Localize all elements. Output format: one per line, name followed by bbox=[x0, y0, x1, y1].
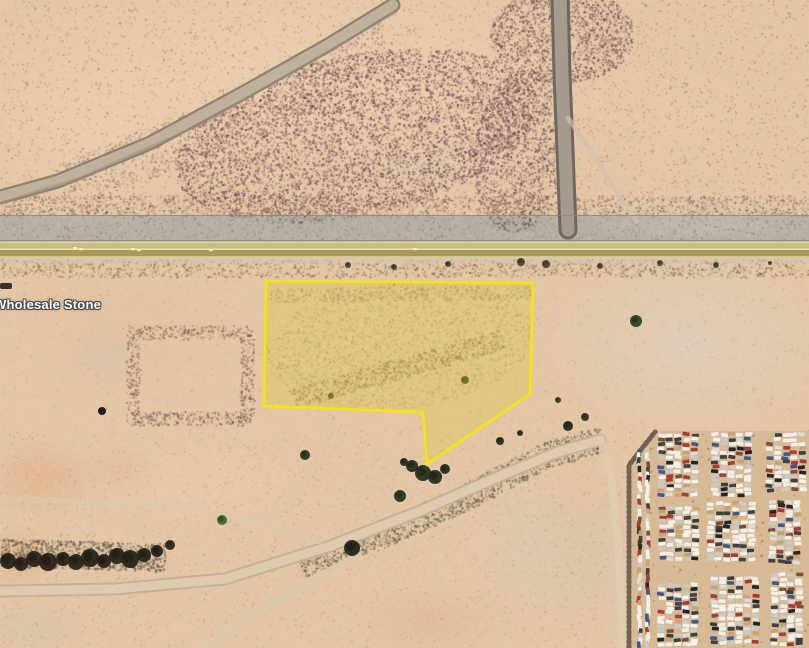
junkyard-dirt-dot bbox=[700, 624, 702, 626]
junk-car bbox=[719, 580, 726, 584]
junk-car bbox=[716, 511, 723, 515]
junk-car bbox=[691, 452, 698, 456]
junk-car bbox=[690, 475, 697, 479]
junk-car bbox=[769, 500, 776, 504]
junk-car bbox=[785, 560, 792, 564]
junk-car bbox=[728, 627, 735, 631]
junkyard-dirt-dot bbox=[694, 573, 697, 576]
junk-car bbox=[785, 523, 792, 527]
junk-car bbox=[715, 516, 722, 520]
junk-car bbox=[739, 512, 746, 516]
highway-pavement bbox=[0, 258, 809, 264]
junk-car bbox=[674, 624, 681, 628]
junk-car bbox=[675, 602, 682, 606]
junk-car bbox=[787, 637, 794, 641]
junk-car bbox=[676, 543, 683, 547]
junkyard-dirt-dot bbox=[701, 456, 703, 458]
junk-car bbox=[691, 448, 698, 452]
junk-car bbox=[691, 611, 698, 615]
junk-car bbox=[727, 607, 734, 611]
junk-car bbox=[719, 608, 726, 612]
junk-car bbox=[736, 581, 743, 585]
junk-car bbox=[718, 616, 725, 620]
tree-shadow bbox=[83, 551, 93, 561]
junk-car bbox=[691, 465, 698, 469]
junkyard-dirt-dot bbox=[673, 566, 675, 568]
junkyard-dirt-dot bbox=[632, 544, 634, 546]
junk-car bbox=[691, 436, 698, 440]
highway-pavement bbox=[0, 242, 809, 243]
junk-car bbox=[659, 519, 666, 523]
junk-car bbox=[719, 585, 726, 589]
junk-car bbox=[658, 542, 665, 546]
junk-car bbox=[775, 475, 782, 479]
junk-car bbox=[718, 613, 725, 617]
junk-car bbox=[769, 550, 776, 554]
junk-car bbox=[684, 548, 691, 552]
junk-car bbox=[799, 451, 806, 455]
junkyard-dirt-dot bbox=[738, 562, 740, 564]
junk-car bbox=[731, 557, 738, 561]
junk-car bbox=[667, 529, 674, 533]
junk-car bbox=[736, 608, 743, 612]
junk-car bbox=[736, 489, 743, 493]
junkyard-dirt-dot bbox=[708, 458, 711, 461]
junk-car bbox=[659, 525, 666, 529]
junkyard-dirt-dot bbox=[727, 534, 728, 535]
junk-car bbox=[776, 554, 783, 558]
junk-car bbox=[716, 501, 723, 505]
junkyard-dirt-dot bbox=[708, 605, 710, 607]
junk-car bbox=[675, 633, 682, 637]
tree-shadow bbox=[70, 556, 79, 565]
junk-car bbox=[728, 632, 735, 636]
tree-shadow bbox=[2, 555, 11, 564]
junk-car bbox=[657, 488, 664, 492]
vehicle bbox=[137, 249, 141, 251]
tree-shadow bbox=[408, 462, 415, 469]
junk-car bbox=[658, 509, 665, 513]
tree-shadow bbox=[564, 422, 570, 428]
junk-car bbox=[666, 443, 673, 447]
junk-car bbox=[744, 447, 751, 451]
junkyard-dirt-dot bbox=[642, 473, 645, 476]
junk-car bbox=[682, 628, 689, 632]
tree-shadow bbox=[396, 492, 403, 499]
junk-car bbox=[712, 627, 719, 631]
junk-car bbox=[728, 432, 735, 436]
junk-car bbox=[719, 577, 726, 581]
junk-car bbox=[675, 598, 682, 602]
junk-car bbox=[733, 544, 740, 548]
junkyard-dirt-dot bbox=[653, 633, 655, 635]
junk-car bbox=[722, 529, 729, 533]
junk-car bbox=[675, 557, 682, 561]
junkyard-dirt-dot bbox=[777, 490, 778, 491]
junk-car bbox=[791, 487, 798, 491]
tree-shadow bbox=[417, 467, 426, 476]
junkyard-dirt-dot bbox=[678, 571, 681, 574]
junk-car bbox=[727, 589, 734, 593]
tree-shadow bbox=[123, 552, 133, 562]
junk-car bbox=[690, 455, 697, 459]
junk-car bbox=[710, 636, 717, 640]
junk-car bbox=[736, 438, 743, 442]
junk-car bbox=[771, 605, 778, 609]
junk-car bbox=[710, 577, 717, 581]
junk-car bbox=[691, 479, 698, 483]
junk-car bbox=[771, 577, 778, 581]
junk-car bbox=[729, 447, 736, 451]
tree-shadow bbox=[518, 259, 522, 263]
misc-objects bbox=[0, 283, 12, 289]
junk-car bbox=[744, 437, 751, 441]
junk-car bbox=[772, 623, 779, 627]
junk-car bbox=[791, 478, 798, 482]
tree-shadow bbox=[346, 542, 355, 551]
dirt-road-path bbox=[0, 440, 600, 591]
junkyard-dirt-dot bbox=[715, 565, 717, 567]
dirt-road-path bbox=[203, 556, 358, 648]
junk-car bbox=[788, 600, 795, 604]
junk-car bbox=[666, 461, 673, 465]
junk-car bbox=[736, 635, 743, 639]
junkyard-dirt-dot bbox=[643, 457, 644, 458]
junk-car bbox=[727, 576, 734, 580]
junk-car bbox=[645, 641, 649, 648]
junk-car bbox=[657, 638, 664, 642]
junk-car bbox=[668, 533, 675, 537]
junk-car bbox=[776, 550, 783, 554]
junk-car bbox=[715, 542, 722, 546]
junkyard-dirt-dot bbox=[734, 646, 736, 648]
junk-car bbox=[739, 538, 746, 542]
junkyard-dirt-dot bbox=[673, 502, 675, 504]
junk-car bbox=[666, 514, 673, 518]
tree-shadow bbox=[497, 438, 501, 442]
tree-shadow bbox=[446, 262, 449, 265]
junk-car bbox=[767, 474, 774, 478]
tree-shadow bbox=[218, 516, 224, 522]
junk-car bbox=[787, 615, 794, 619]
junk-car bbox=[752, 585, 759, 589]
junkyard-dirt-dot bbox=[805, 630, 806, 631]
junk-car bbox=[787, 642, 794, 646]
junk-car bbox=[739, 534, 746, 538]
junk-car bbox=[715, 539, 722, 543]
highway-pavement bbox=[0, 243, 809, 249]
junkyard-dirt-dot bbox=[653, 600, 655, 602]
vehicle bbox=[131, 248, 135, 250]
junk-car bbox=[741, 520, 748, 524]
tree-shadow bbox=[441, 465, 447, 471]
junk-car bbox=[794, 513, 801, 517]
junk-car bbox=[666, 583, 673, 587]
junk-car bbox=[732, 507, 739, 511]
tree-shadow bbox=[598, 264, 601, 267]
junk-car bbox=[752, 594, 759, 598]
junk-car bbox=[752, 631, 759, 635]
junk-car bbox=[798, 432, 805, 436]
junk-car bbox=[711, 474, 718, 478]
junk-car bbox=[783, 439, 790, 443]
junk-car bbox=[778, 523, 785, 527]
junkyard-dirt-dot bbox=[651, 471, 653, 473]
junk-car bbox=[721, 461, 728, 465]
junk-car bbox=[665, 638, 672, 642]
junk-car bbox=[786, 505, 793, 509]
junk-car bbox=[675, 615, 682, 619]
tree-shadow bbox=[556, 398, 559, 401]
junk-car bbox=[732, 521, 739, 525]
junkyard-dirt-dot bbox=[652, 447, 654, 449]
junk-car bbox=[666, 634, 673, 638]
junk-car bbox=[691, 556, 698, 560]
junk-car bbox=[675, 516, 682, 520]
junk-car bbox=[728, 622, 735, 626]
tree-shadow bbox=[41, 555, 51, 565]
junk-car bbox=[783, 446, 790, 450]
junk-car bbox=[711, 461, 718, 465]
junk-car bbox=[692, 519, 699, 523]
junk-car bbox=[706, 502, 713, 506]
junk-car bbox=[667, 464, 674, 468]
junk-car bbox=[735, 590, 742, 594]
junk-car bbox=[683, 480, 690, 484]
junk-car bbox=[682, 450, 689, 454]
dirt-road-path bbox=[568, 118, 637, 221]
junkyard-dirt-dot bbox=[793, 494, 795, 496]
junk-car bbox=[666, 596, 673, 600]
junk-car bbox=[770, 537, 777, 541]
tree-shadow bbox=[658, 261, 661, 264]
junkyard-dirt-dot bbox=[698, 639, 701, 642]
junk-car bbox=[667, 506, 674, 510]
junk-car bbox=[690, 628, 697, 632]
junk-car bbox=[772, 581, 779, 585]
junk-car bbox=[721, 483, 728, 487]
junk-car bbox=[718, 599, 725, 603]
junk-car bbox=[793, 522, 800, 526]
junk-car bbox=[668, 539, 675, 543]
junkyard-dirt-dot bbox=[669, 580, 671, 582]
junk-car bbox=[788, 604, 795, 608]
junk-car bbox=[723, 553, 730, 557]
junk-car bbox=[732, 525, 739, 529]
junk-car bbox=[675, 606, 682, 610]
junkyard-dirt-dot bbox=[679, 568, 682, 571]
dirt-road-path bbox=[560, 0, 568, 230]
junk-car bbox=[779, 632, 786, 636]
junk-car bbox=[691, 461, 698, 465]
junk-car bbox=[744, 456, 751, 460]
junk-car bbox=[785, 551, 792, 555]
junk-car bbox=[665, 493, 672, 497]
junk-car bbox=[796, 623, 803, 627]
junk-car bbox=[767, 456, 774, 460]
junk-car bbox=[749, 552, 756, 556]
junk-car bbox=[692, 538, 699, 542]
parcel-polygon[interactable] bbox=[264, 281, 533, 464]
junk-car bbox=[796, 641, 803, 645]
junk-car bbox=[692, 551, 699, 555]
junk-car bbox=[727, 581, 734, 585]
junk-car bbox=[774, 456, 781, 460]
junk-car bbox=[781, 487, 788, 491]
junk-car bbox=[690, 642, 697, 646]
junk-car bbox=[658, 587, 665, 591]
junk-car bbox=[800, 488, 807, 492]
junk-car bbox=[731, 515, 738, 519]
junk-car bbox=[711, 640, 718, 644]
junk-car bbox=[739, 558, 746, 562]
tree-shadow bbox=[632, 317, 639, 324]
junk-car bbox=[747, 549, 754, 553]
junk-car bbox=[684, 543, 691, 547]
junk-car bbox=[674, 488, 681, 492]
junk-car bbox=[788, 633, 795, 637]
junk-car bbox=[691, 488, 698, 492]
junk-car bbox=[683, 483, 690, 487]
junk-car bbox=[783, 459, 790, 463]
junk-car bbox=[767, 465, 774, 469]
junk-car bbox=[682, 623, 689, 627]
junkyard-dirt-dot bbox=[705, 440, 707, 442]
junk-car bbox=[674, 446, 681, 450]
tree-shadow bbox=[16, 559, 24, 567]
junk-car bbox=[659, 456, 666, 460]
junk-car bbox=[666, 543, 673, 547]
junk-car bbox=[674, 583, 681, 587]
junk-car bbox=[711, 488, 718, 492]
tree-shadow bbox=[518, 431, 521, 434]
junk-car bbox=[776, 541, 783, 545]
junk-car bbox=[711, 585, 718, 589]
junk-car bbox=[794, 614, 801, 618]
junk-car bbox=[794, 531, 801, 535]
junk-car bbox=[799, 446, 806, 450]
tree-shadow bbox=[714, 263, 717, 266]
junk-car bbox=[783, 473, 790, 477]
junk-car bbox=[690, 597, 697, 601]
junk-car bbox=[692, 529, 699, 533]
junkyard bbox=[628, 431, 809, 648]
junk-car bbox=[740, 551, 747, 555]
junk-car bbox=[657, 610, 664, 614]
vehicle bbox=[73, 247, 77, 249]
junk-car bbox=[744, 478, 751, 482]
junk-car bbox=[690, 587, 697, 591]
junk-car bbox=[752, 581, 759, 585]
dirt-road-edge bbox=[0, 440, 600, 591]
junk-car bbox=[728, 641, 735, 645]
dark-object bbox=[0, 283, 12, 289]
highway-pavement bbox=[0, 250, 809, 256]
junkyard-dirt-dot bbox=[654, 476, 656, 478]
junk-car bbox=[675, 620, 682, 624]
junk-car bbox=[769, 505, 776, 509]
junk-car bbox=[790, 438, 797, 442]
junk-car bbox=[675, 493, 682, 497]
junk-car bbox=[723, 539, 730, 543]
junk-car bbox=[753, 604, 760, 608]
junk-car bbox=[728, 487, 735, 491]
tree-shadow bbox=[111, 550, 120, 559]
junk-car bbox=[796, 591, 803, 595]
junk-car bbox=[675, 510, 682, 514]
junk-car bbox=[736, 586, 743, 590]
junk-car bbox=[751, 576, 758, 580]
junk-car bbox=[736, 631, 743, 635]
junk-car bbox=[796, 573, 803, 577]
junk-car bbox=[735, 603, 742, 607]
junk-car bbox=[735, 595, 742, 599]
junk-car bbox=[684, 553, 691, 557]
junk-car bbox=[745, 492, 752, 496]
tree-shadow bbox=[28, 553, 37, 562]
junkyard-dirt-dot bbox=[699, 592, 701, 594]
junk-car bbox=[796, 627, 803, 631]
tree-shadow bbox=[301, 451, 307, 457]
junk-car bbox=[780, 642, 787, 646]
junkyard-dirt-dot bbox=[650, 448, 653, 451]
junk-car bbox=[715, 534, 722, 538]
junk-car bbox=[744, 487, 751, 491]
junk-car bbox=[716, 529, 723, 533]
map-label-wholesale-stone[interactable]: Wholesale Stone bbox=[0, 297, 101, 312]
junk-car bbox=[727, 636, 734, 640]
junk-car bbox=[727, 598, 734, 602]
junk-car bbox=[729, 438, 736, 442]
junk-car bbox=[674, 642, 681, 646]
junk-car bbox=[791, 461, 798, 465]
tree-shadow bbox=[153, 547, 160, 554]
tree-shadow bbox=[769, 262, 771, 264]
tree-shadow bbox=[139, 550, 147, 558]
junkyard-dirt-dot bbox=[678, 612, 679, 613]
junkyard-dirt-dot bbox=[691, 500, 694, 503]
junk-car bbox=[768, 559, 775, 563]
junk-car bbox=[714, 557, 721, 561]
junk-car bbox=[786, 510, 793, 514]
junk-car bbox=[744, 639, 751, 643]
tree-shadow bbox=[392, 265, 395, 268]
junk-car bbox=[743, 613, 750, 617]
junk-car bbox=[795, 609, 802, 613]
vehicle bbox=[79, 248, 83, 250]
junk-car bbox=[786, 518, 793, 522]
junkyard-dirt-dot bbox=[731, 548, 732, 549]
junk-car bbox=[770, 518, 777, 522]
junk-car bbox=[775, 465, 782, 469]
junk-car bbox=[745, 432, 752, 436]
junkyard-dirt-dot bbox=[743, 645, 745, 647]
tree-shadow bbox=[430, 472, 438, 480]
parcel-boundary[interactable] bbox=[264, 281, 533, 464]
junk-car bbox=[729, 465, 736, 469]
junk-car bbox=[682, 615, 689, 619]
junk-car bbox=[793, 500, 800, 504]
junk-car bbox=[785, 536, 792, 540]
junk-car bbox=[794, 542, 801, 546]
junk-car bbox=[774, 451, 781, 455]
junk-car bbox=[683, 525, 690, 529]
junk-car bbox=[731, 553, 738, 557]
junkyard-dirt-dot bbox=[707, 448, 710, 451]
tree-shadow bbox=[99, 556, 107, 564]
satellite-map[interactable]: Wholesale Stone bbox=[0, 0, 809, 648]
junk-car bbox=[720, 455, 727, 459]
